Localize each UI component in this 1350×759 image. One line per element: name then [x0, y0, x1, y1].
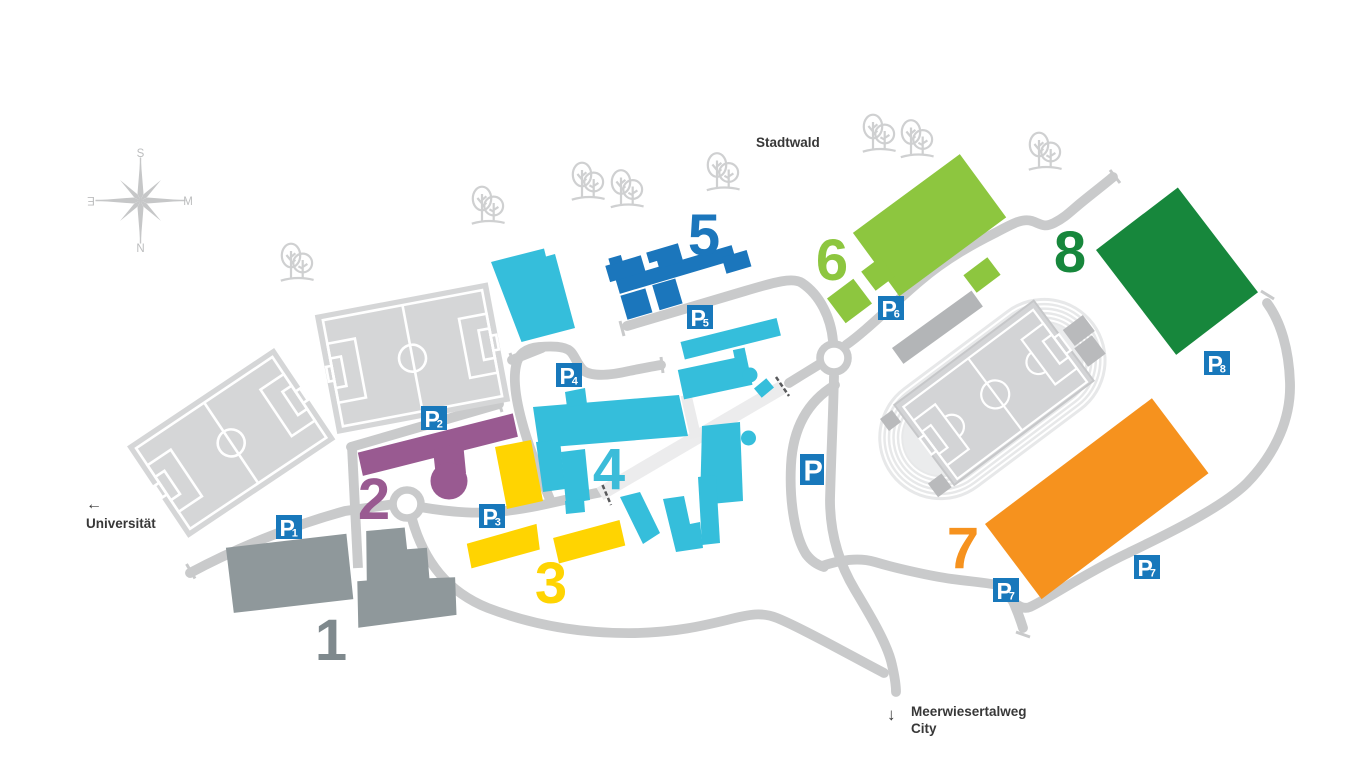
svg-text:6: 6: [894, 309, 900, 321]
svg-text:2: 2: [358, 467, 390, 532]
svg-text:7: 7: [947, 516, 979, 581]
svg-text:3: 3: [535, 551, 567, 616]
svg-text:P: P: [804, 456, 823, 488]
svg-text:3: 3: [495, 517, 501, 529]
svg-text:←: ←: [86, 496, 102, 513]
svg-text:1: 1: [292, 528, 298, 540]
svg-text:↓: ↓: [887, 705, 896, 724]
svg-text:Universität: Universität: [86, 516, 156, 531]
svg-text:4: 4: [593, 437, 625, 502]
svg-text:Stadtwald: Stadtwald: [756, 135, 820, 150]
svg-text:S: S: [137, 148, 145, 160]
svg-text:5: 5: [688, 203, 720, 268]
svg-text:5: 5: [703, 318, 709, 330]
svg-text:M: M: [183, 196, 193, 208]
svg-text:7: 7: [1009, 591, 1015, 603]
svg-text:8: 8: [1220, 364, 1226, 376]
svg-text:E: E: [87, 194, 95, 206]
svg-text:City: City: [911, 721, 937, 736]
svg-text:1: 1: [315, 608, 347, 673]
svg-text:Meerwiesertalweg: Meerwiesertalweg: [911, 704, 1027, 719]
svg-text:6: 6: [816, 228, 848, 293]
svg-text:2: 2: [437, 419, 443, 431]
svg-text:8: 8: [1054, 220, 1086, 285]
svg-text:N: N: [136, 243, 144, 255]
svg-text:4: 4: [572, 376, 579, 388]
svg-text:7: 7: [1150, 568, 1156, 580]
